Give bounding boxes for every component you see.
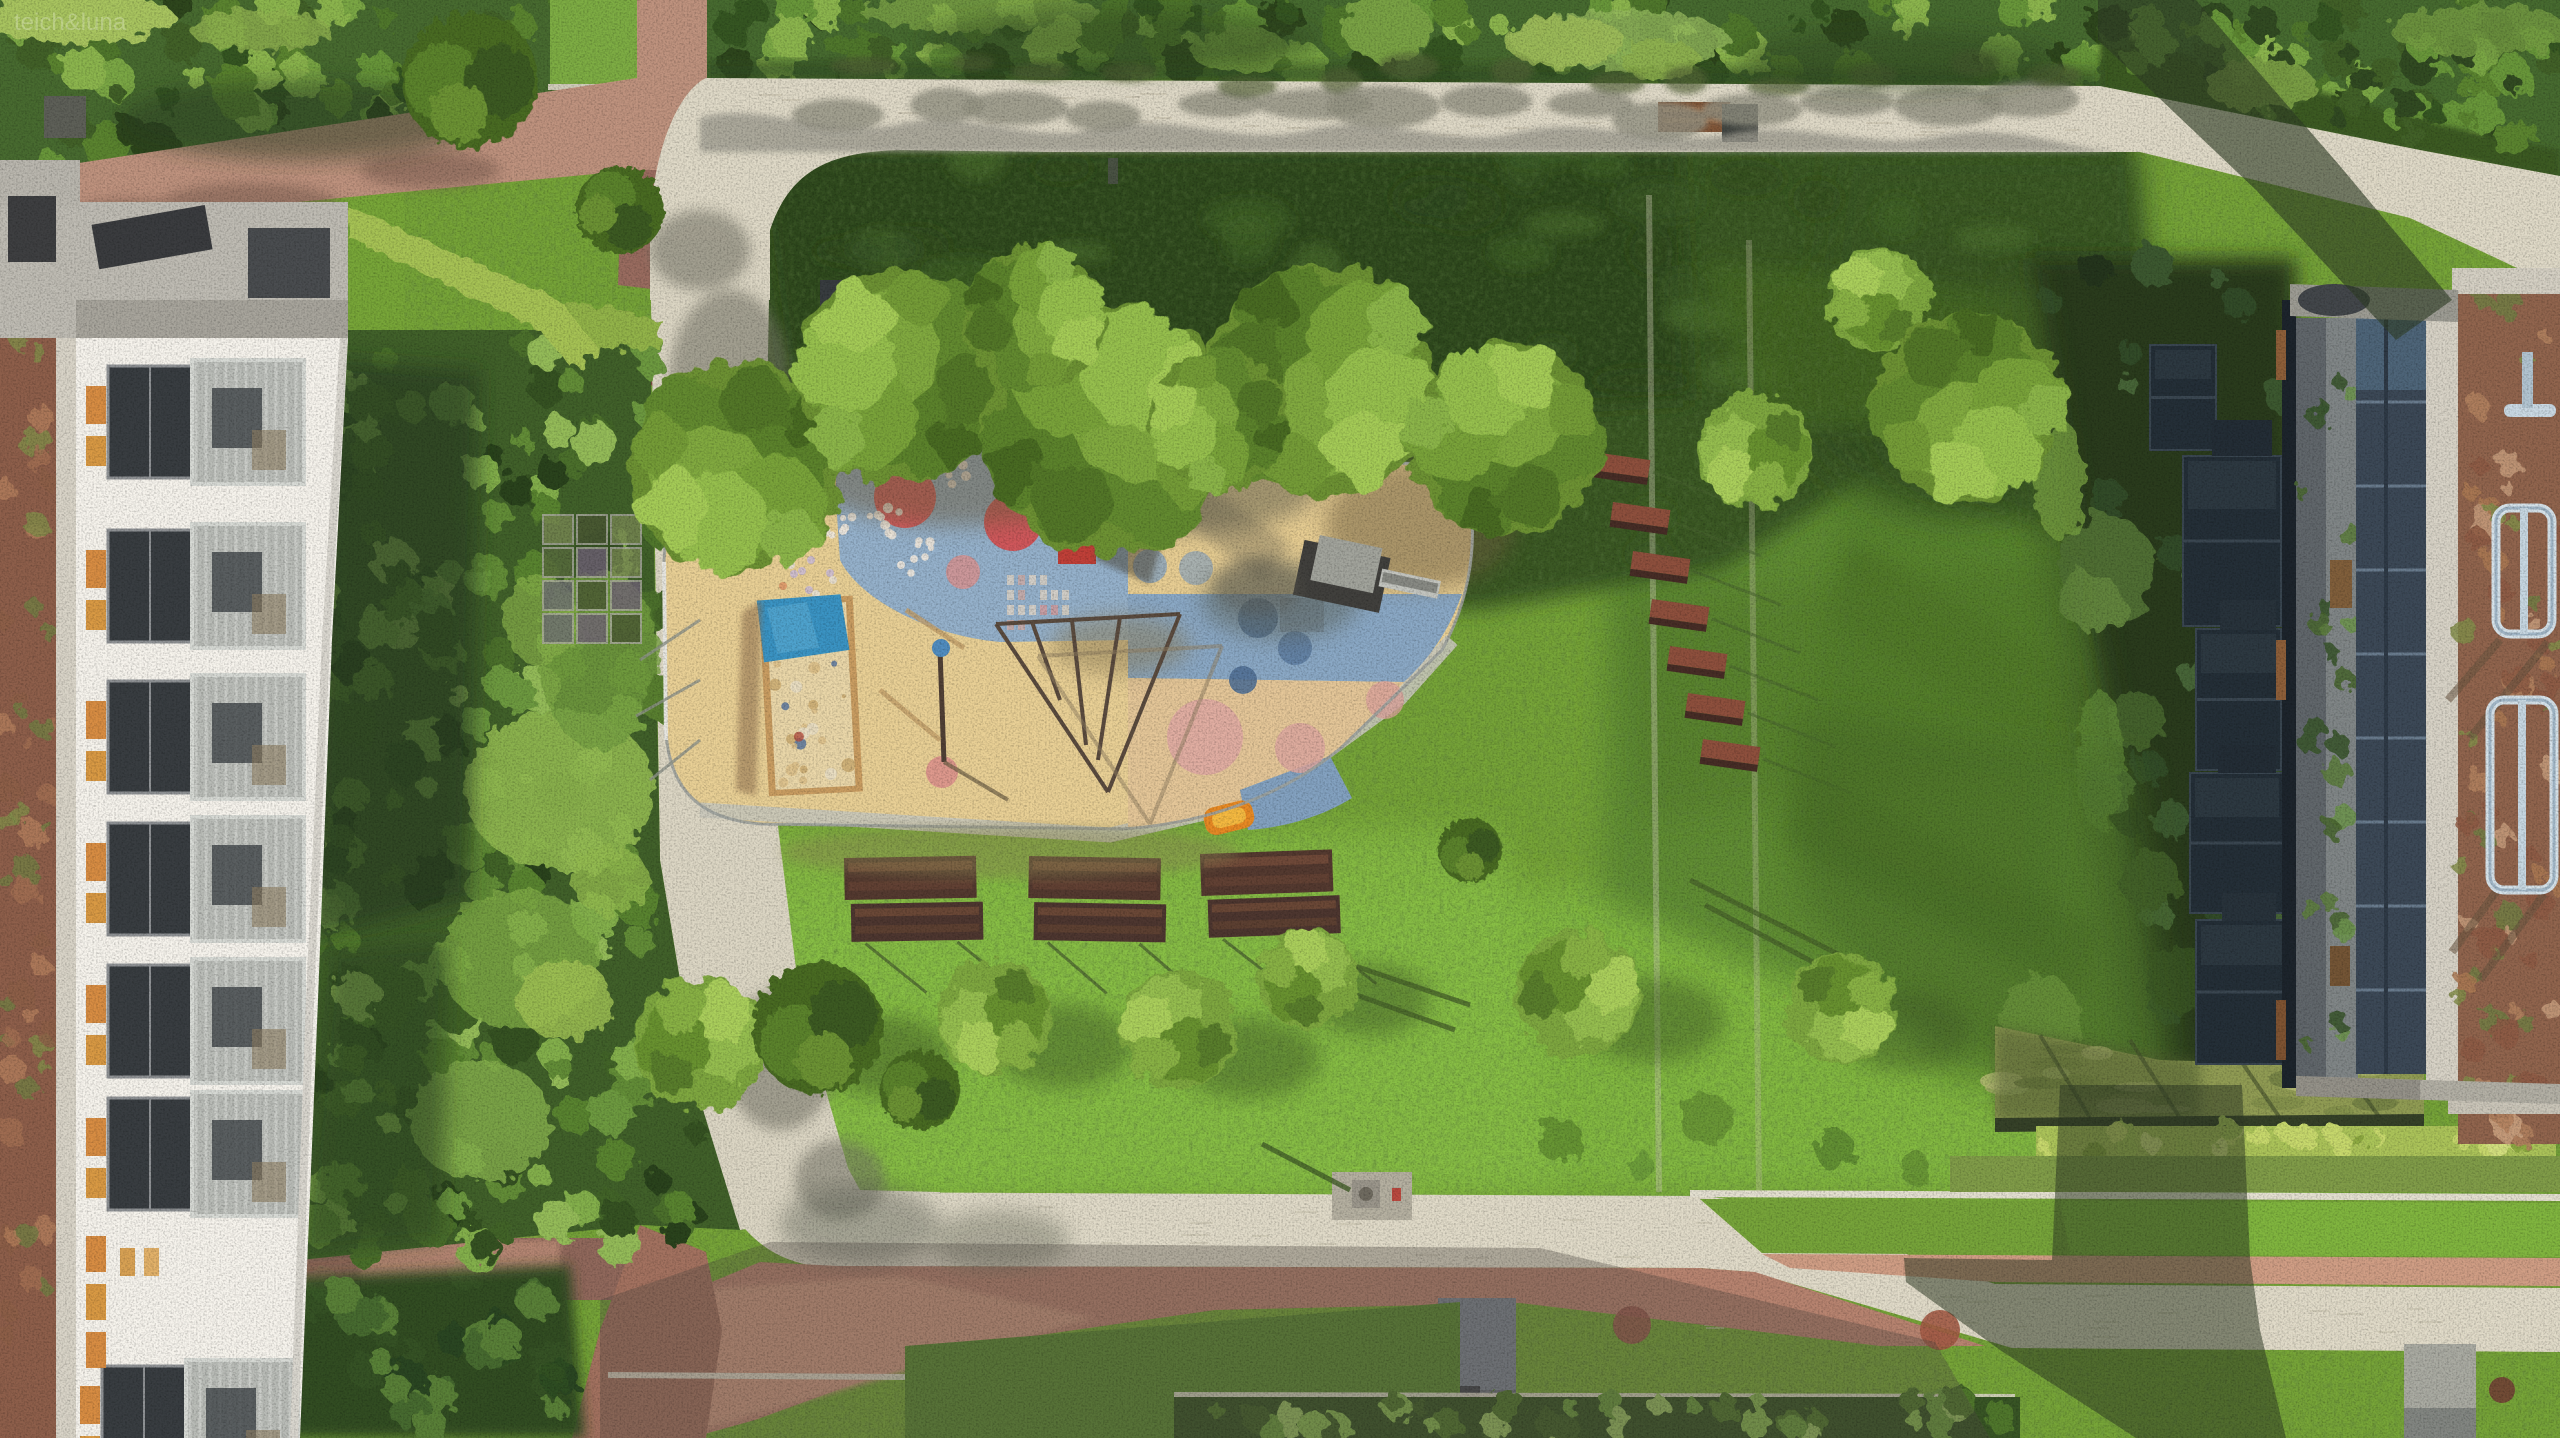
svg-text:teich&luna: teich&luna xyxy=(14,9,127,36)
